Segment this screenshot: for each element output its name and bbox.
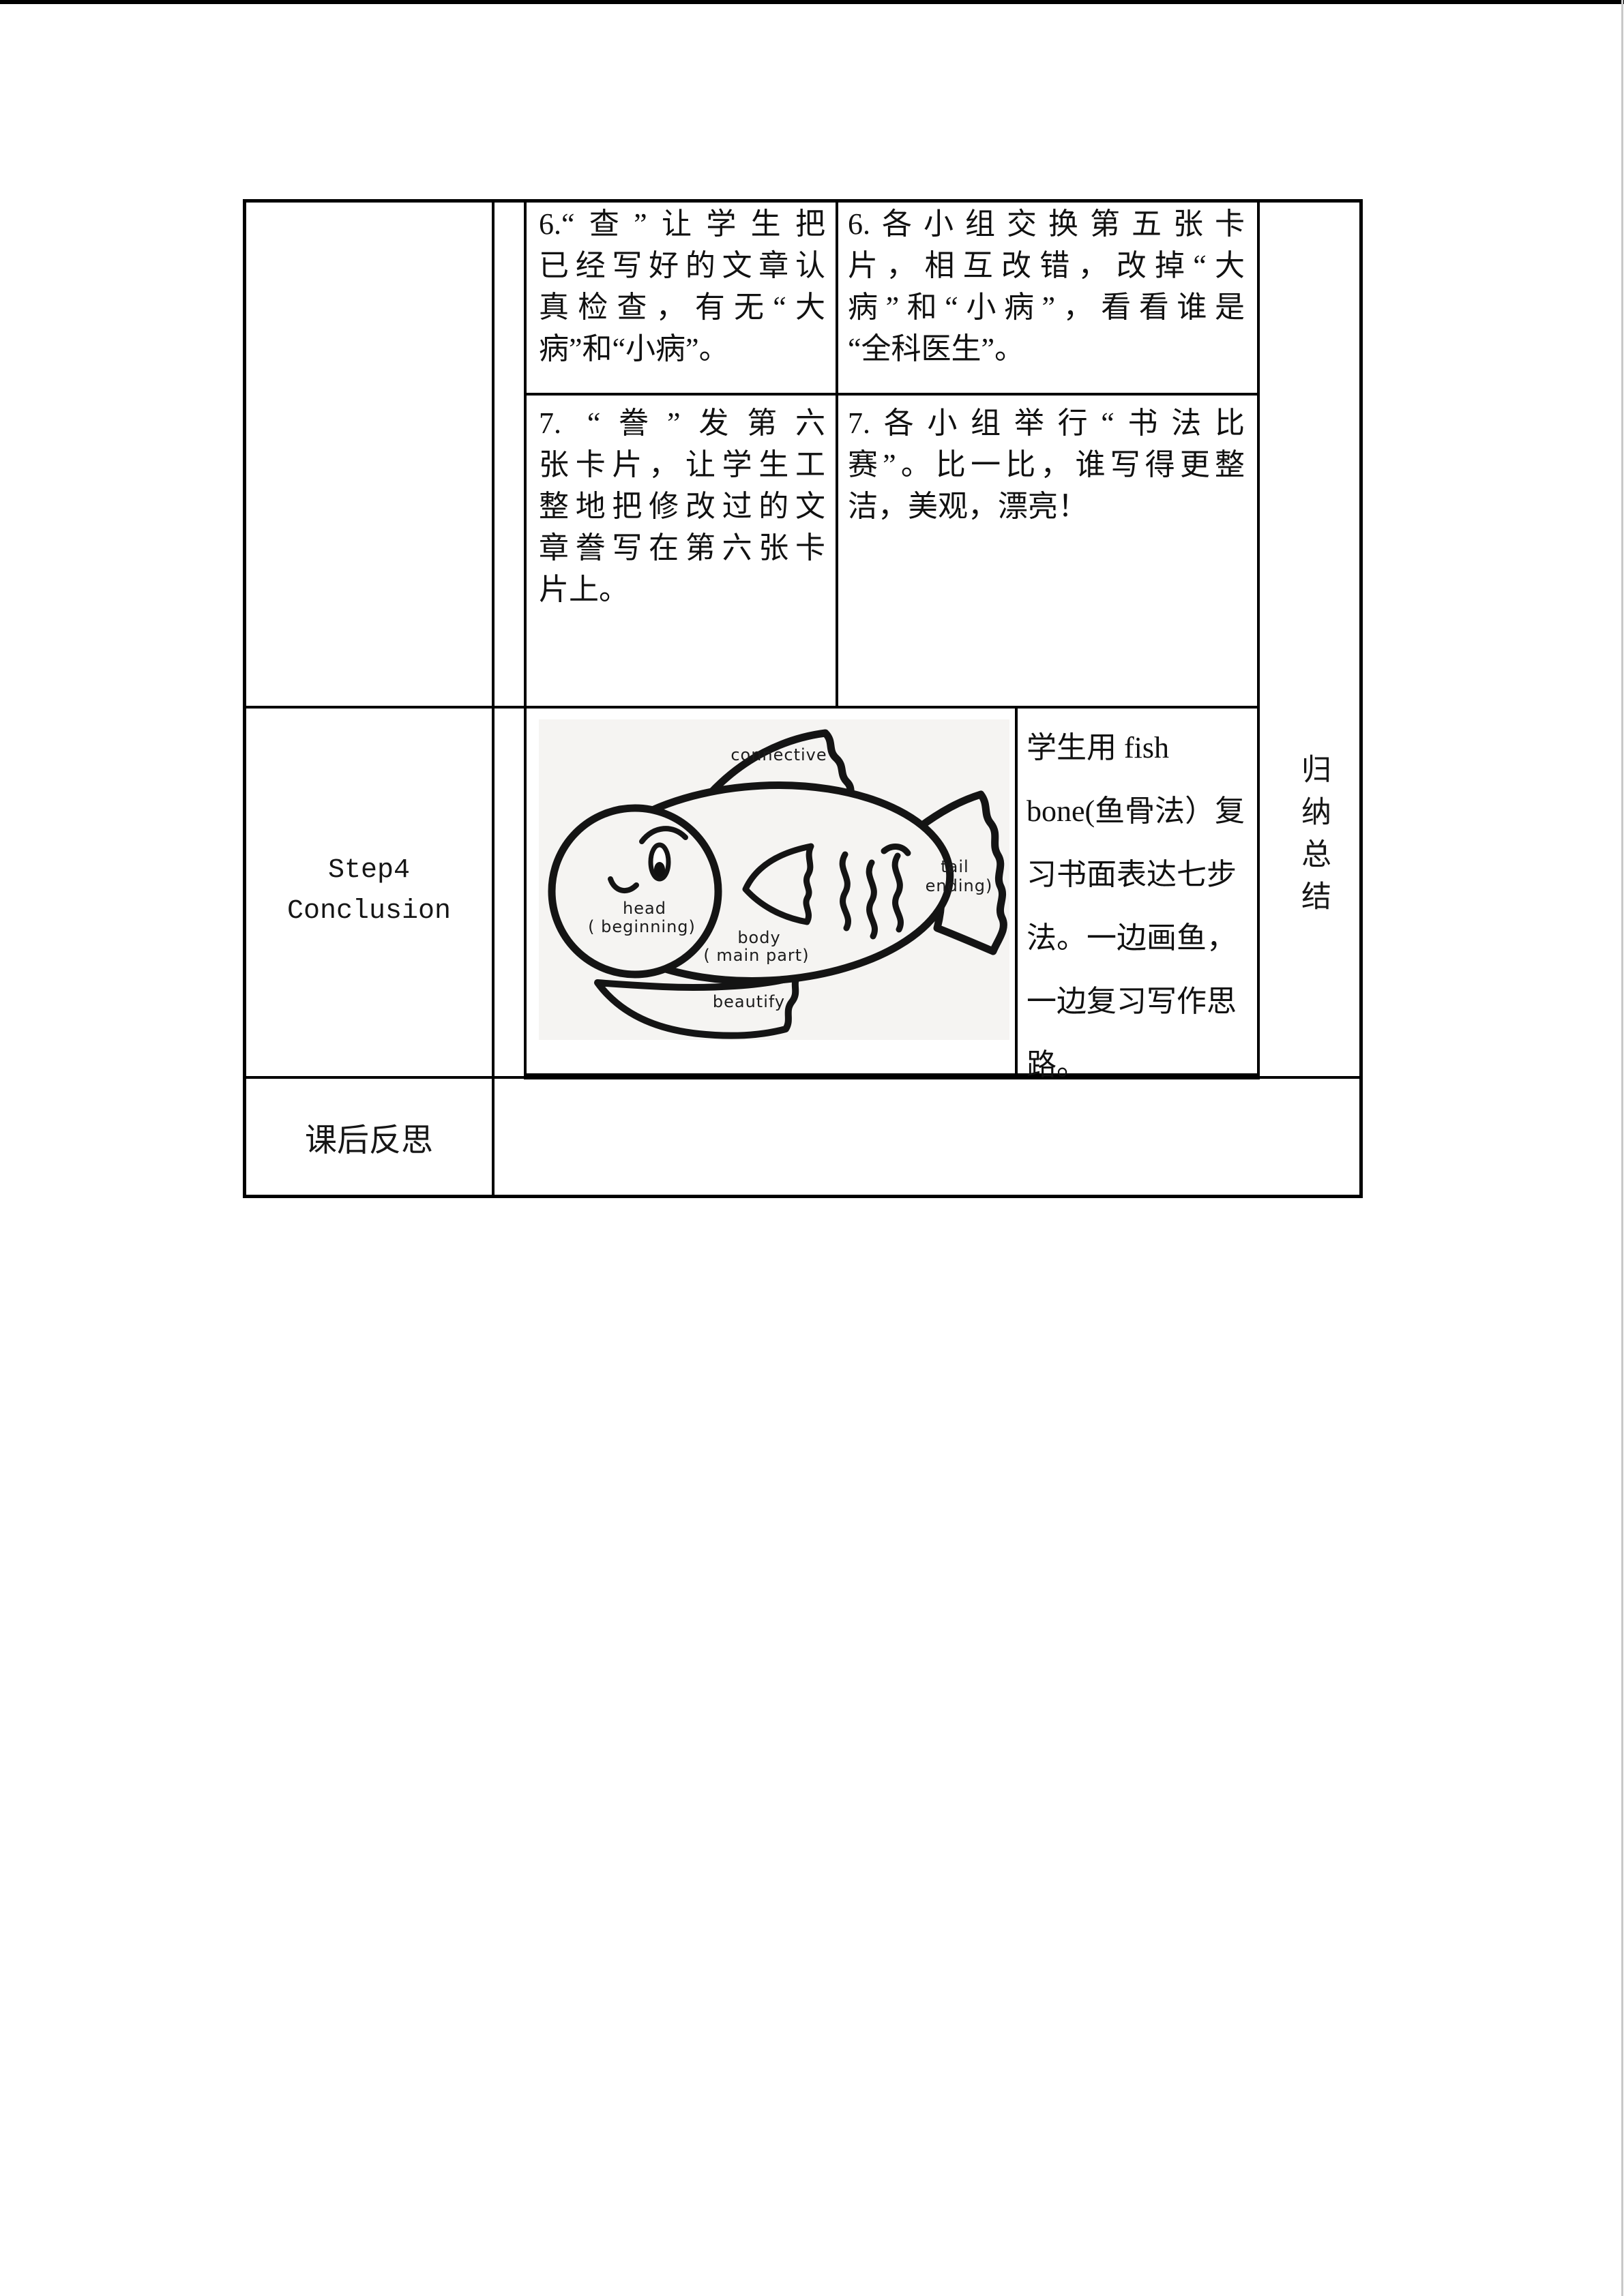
text-line: 7. “誊”发第六 (539, 402, 825, 444)
text-line: 习书面表达七步 (1027, 843, 1248, 906)
label-beginning: ( beginning) (588, 917, 696, 936)
label-main-part: ( main part) (703, 946, 809, 965)
cell-student-activity7: 7.各小组举行“书法比 赛”。比一比，谁写得更整 洁，美观，漂亮！ (848, 402, 1245, 527)
text-line: 病”和“小病”。 (539, 328, 825, 370)
table-border (243, 1195, 1363, 1198)
label-connective: connective (730, 745, 827, 764)
text-line: 赛”。比一比，谁写得更整 (848, 444, 1245, 486)
text-line: 片上。 (539, 569, 825, 610)
text-line: 6.“查”让学生把 (539, 203, 825, 245)
label-head: head (623, 899, 666, 918)
cell-teacher-step6: 6.“查”让学生把 已经写好的文章认 真检查，有无“大 病”和“小病”。 (539, 203, 825, 370)
cell-step4-conclusion: Step4 Conclusion (246, 709, 492, 1073)
label-beautify: beautify (713, 992, 785, 1011)
label-tail: tail (941, 857, 969, 876)
text-line: 6.各小组交换第五张卡 (848, 203, 1245, 245)
page-top-bar (0, 0, 1624, 4)
text-line: 7.各小组举行“书法比 (848, 402, 1245, 444)
cell-reflection: 课后反思 (246, 1079, 492, 1195)
text-line: 已经写好的文章认 (539, 245, 825, 286)
text-line: 整地把修改过的文 (539, 486, 825, 527)
page-right-edge (1621, 0, 1623, 2296)
text-line: 洁，美观，漂亮！ (848, 486, 1245, 527)
text-line: 真检查，有无“大 (539, 286, 825, 328)
table-border (1015, 706, 1018, 1079)
table-border (492, 199, 494, 1198)
cell-student-activity6: 6.各小组交换第五张卡 片，相互改错，改掉“大 病”和“小病”，看看谁是 “全科… (848, 203, 1245, 370)
cell-summary-vertical: 归纳总结 (1291, 754, 1335, 923)
text-line: “全科医生”。 (848, 328, 1245, 370)
text-line: 学生用 fish (1027, 716, 1248, 779)
table-border (1257, 199, 1260, 1079)
text-line: 张卡片，让学生工 (539, 444, 825, 486)
reflection-label: 课后反思 (305, 1114, 433, 1161)
document-page: 6.“查”让学生把 已经写好的文章认 真检查，有无“大 病”和“小病”。 6.各… (0, 0, 1624, 2296)
text-line: 章誊写在第六张卡 (539, 527, 825, 569)
cell-fishbone-note: 学生用 fish bone(鱼骨法）复 习书面表达七步 法。一边画鱼， 一边复习… (1027, 716, 1248, 1097)
table-border (1359, 199, 1363, 1198)
fish-head-outline (552, 808, 718, 974)
label-ending: ending) (926, 876, 993, 895)
step4-label-line1: Step4 (328, 850, 410, 891)
table-border (243, 199, 1363, 203)
text-line: 病”和“小病”，看看谁是 (848, 286, 1245, 328)
text-line: 法。一边画鱼， (1027, 906, 1248, 970)
text-line: 一边复习写作思 (1027, 970, 1248, 1033)
fish-eye-pupil (654, 862, 665, 877)
table-border (836, 199, 838, 709)
text-line: 路。 (1027, 1033, 1248, 1097)
table-border (524, 199, 527, 1079)
text-line: bone(鱼骨法）复 (1027, 779, 1248, 843)
label-body: body (737, 928, 780, 947)
fishbone-diagram: connective head ( beginning) body ( main… (539, 719, 1009, 1040)
text-line: 片，相互改错，改掉“大 (848, 245, 1245, 286)
step4-label-line2: Conclusion (287, 891, 451, 932)
cell-teacher-step7: 7. “誊”发第六 张卡片，让学生工 整地把修改过的文 章誊写在第六张卡 片上。 (539, 402, 825, 610)
table-border (524, 393, 1260, 396)
